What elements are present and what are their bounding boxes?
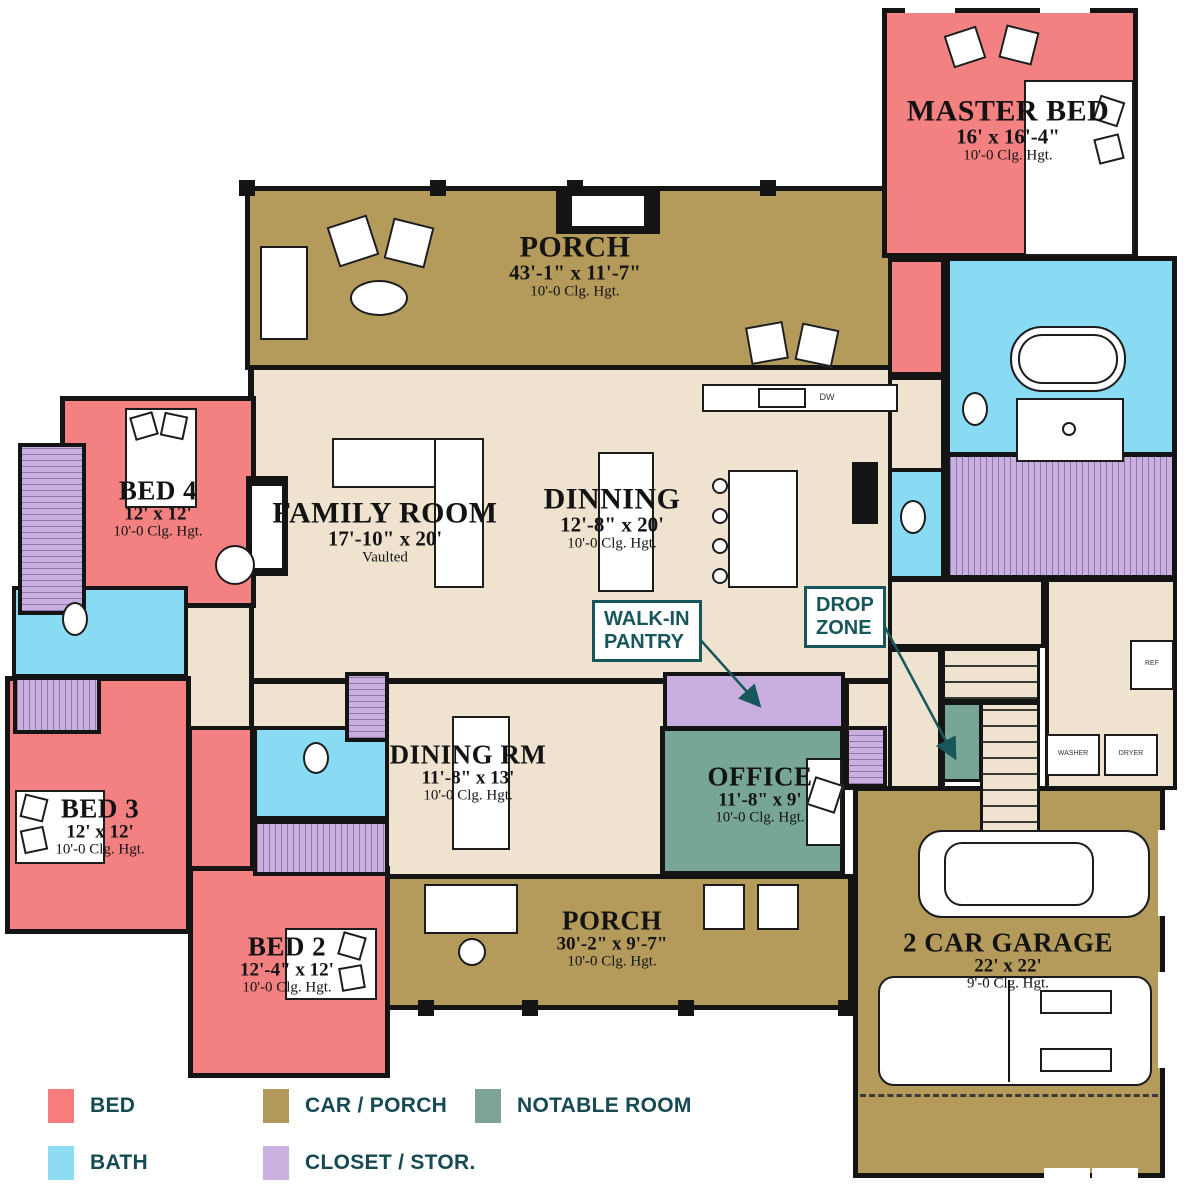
room-clg: 10'-0 Clg. Hgt.: [557, 954, 668, 970]
room-label-dinning: DINNING 12'-8" x 20' 10'-0 Clg. Hgt.: [544, 484, 681, 553]
truck-bed-box: [1040, 990, 1112, 1014]
room-dims: 11'-8" x 13': [390, 768, 547, 788]
stool-icon: [712, 478, 728, 494]
room-label-office: OFFICE 11'-8" x 9' 10'-0 Clg. Hgt.: [707, 762, 812, 825]
room-dims: 17'-10" x 20': [272, 529, 497, 551]
room-dims: 16' x 16'-4": [907, 127, 1110, 149]
dryer-label: DRYER: [1104, 750, 1158, 757]
room-area-diningrm-closet: [345, 672, 389, 742]
legend-swatch-closet-stor: [263, 1146, 289, 1180]
room-name: 2 CAR GARAGE: [903, 928, 1113, 956]
dishwasher-label: DW: [812, 392, 842, 402]
sink-icon: [758, 388, 806, 408]
legend-item-closet-stor: CLOSET / STOR.: [263, 1146, 476, 1180]
hall-mud: [888, 578, 1045, 648]
room-label-family-room: FAMILY ROOM 17'-10" x 20' Vaulted: [272, 498, 497, 567]
car-cabin-icon: [944, 842, 1094, 906]
washer-label: WASHER: [1046, 750, 1100, 757]
room-name: DINING RM: [390, 740, 547, 768]
garage-entry-door-1: [1044, 1168, 1090, 1184]
room-dims: 12'-8" x 20': [544, 515, 681, 537]
room-area-master-closet: [945, 452, 1177, 580]
stool-icon: [712, 538, 728, 554]
room-clg: 10'-0 Clg. Hgt.: [390, 788, 547, 804]
garage-entry-door-2: [1092, 1168, 1138, 1184]
garage-dashed-line: [860, 1094, 1158, 1097]
room-name: MASTER BED: [907, 96, 1110, 127]
room-label-bed2: BED 2 12'-4" x 12' 10'-0 Clg. Hgt.: [240, 932, 334, 995]
legend-label: NOTABLE ROOM: [517, 1094, 692, 1118]
legend-item-car-porch: CAR / PORCH: [263, 1089, 447, 1123]
porch-post: [522, 1000, 538, 1016]
window: [905, 3, 955, 13]
room-name: OFFICE: [707, 762, 812, 790]
garage-door-right-1: [1158, 830, 1172, 916]
room-label-porch-bottom: PORCH 30'-2" x 9'-7" 10'-0 Clg. Hgt.: [557, 906, 668, 969]
legend-swatch-car-porch: [263, 1089, 289, 1123]
porch-sofa-icon: [260, 246, 308, 340]
hall-stairs: [888, 648, 942, 790]
callout-line: ZONE: [816, 617, 874, 640]
legend-swatch-bath: [48, 1146, 74, 1180]
legend-label: BED: [90, 1094, 135, 1118]
room-name: FAMILY ROOM: [272, 498, 497, 529]
room-label-porch-top: PORCH 43'-1" x 11'-7" 10'-0 Clg. Hgt.: [509, 232, 641, 301]
room-clg: 10'-0 Clg. Hgt.: [544, 537, 681, 553]
room-clg: 10'-0 Clg. Hgt.: [707, 810, 812, 826]
kitchen-island-icon: [728, 470, 798, 588]
room-sub: Vaulted: [272, 551, 497, 567]
room-name: PORCH: [557, 906, 668, 934]
room-name: BED 2: [240, 932, 334, 960]
room-area-hall-closet: [13, 676, 101, 734]
truck-cab-line: [1008, 980, 1010, 1082]
room-label-master-bed: MASTER BED 16' x 16'-4" 10'-0 Clg. Hgt.: [907, 96, 1110, 165]
window: [1040, 3, 1090, 13]
room-clg: 10'-0 Clg. Hgt.: [55, 842, 144, 858]
toilet-icon: [62, 602, 88, 636]
legend-item-bed: BED: [48, 1089, 135, 1123]
range-icon: [852, 462, 878, 524]
room-dims: 43'-1" x 11'-7": [509, 263, 641, 285]
porch-post: [838, 1000, 854, 1016]
stairs-upper: [942, 648, 1040, 702]
legend-label: CAR / PORCH: [305, 1094, 447, 1118]
master-vestibule: [888, 258, 945, 376]
stool-icon: [712, 508, 728, 524]
floor-plan: REF WASHER DRYER DW PORCH 43'-1" x 11'-7…: [0, 0, 1200, 1189]
room-clg: 10'-0 Clg. Hgt.: [113, 524, 202, 540]
room-name: BED 3: [55, 794, 144, 822]
garage-door-right-2: [1158, 972, 1172, 1068]
room-clg: 10'-0 Clg. Hgt.: [509, 285, 641, 301]
armchair-icon: [215, 545, 255, 585]
porch-post: [418, 1000, 434, 1016]
porch-table-icon: [458, 938, 486, 966]
legend-swatch-notable-room: [475, 1089, 501, 1123]
legend-label: CLOSET / STOR.: [305, 1151, 476, 1175]
porch-table-icon: [350, 280, 408, 316]
porch-post: [239, 180, 255, 196]
toilet-icon: [962, 392, 988, 426]
room-label-bed3: BED 3 12' x 12' 10'-0 Clg. Hgt.: [55, 794, 144, 857]
porch-post: [678, 1000, 694, 1016]
porch-chair-icon: [745, 321, 789, 365]
porch-chair-icon: [794, 322, 839, 367]
entry-door-icon: [572, 196, 644, 226]
legend-item-notable-room: NOTABLE ROOM: [475, 1089, 692, 1123]
bathtub-icon: [1010, 326, 1126, 392]
room-label-garage: 2 CAR GARAGE 22' x 22' 9'-0 Clg. Hgt.: [903, 928, 1113, 991]
legend-swatch-bed: [48, 1089, 74, 1123]
shower-drain-icon: [1062, 422, 1076, 436]
room-area-office-closet: [845, 726, 887, 788]
pillow-icon: [20, 826, 48, 854]
porch-post: [760, 180, 776, 196]
room-clg: 10'-0 Clg. Hgt.: [240, 980, 334, 996]
truck-bed-box: [1040, 1048, 1112, 1072]
room-name: BED 4: [113, 476, 202, 504]
room-label-dining-rm: DINING RM 11'-8" x 13' 10'-0 Clg. Hgt.: [390, 740, 547, 803]
callout-drop-zone: DROP ZONE: [804, 586, 886, 648]
callout-line: PANTRY: [604, 631, 690, 654]
room-name: DINNING: [544, 484, 681, 515]
pillow-icon: [338, 964, 366, 992]
toilet-icon: [303, 742, 329, 774]
room-area-bed4-closet: [18, 443, 86, 615]
porch-sofa-icon: [424, 884, 518, 934]
room-label-bed4: BED 4 12' x 12' 10'-0 Clg. Hgt.: [113, 476, 202, 539]
room-dims: 22' x 22': [903, 956, 1113, 976]
room-area-bed2-closet: [253, 820, 389, 876]
room-area-drop-zone: [942, 702, 982, 782]
room-clg: 9'-0 Clg. Hgt.: [903, 976, 1113, 992]
room-dims: 12' x 12': [55, 822, 144, 842]
fridge-label: REF: [1130, 660, 1174, 667]
pillow-icon: [160, 412, 188, 440]
room-clg: 10'-0 Clg. Hgt.: [907, 149, 1110, 165]
callout-line: DROP: [816, 594, 874, 617]
room-dims: 12' x 12': [113, 504, 202, 524]
porch-post: [430, 180, 446, 196]
room-dims: 11'-8" x 9': [707, 790, 812, 810]
toilet-icon: [900, 500, 926, 534]
room-dims: 12'-4" x 12': [240, 960, 334, 980]
room-dims: 30'-2" x 9'-7": [557, 934, 668, 954]
porch-chair-icon: [703, 884, 745, 930]
callout-line: WALK-IN: [604, 608, 690, 631]
porch-chair-icon: [757, 884, 799, 930]
callout-walk-in-pantry: WALK-IN PANTRY: [592, 600, 702, 662]
stool-icon: [712, 568, 728, 584]
room-name: PORCH: [509, 232, 641, 263]
legend-item-bath: BATH: [48, 1146, 148, 1180]
legend-label: BATH: [90, 1151, 148, 1175]
